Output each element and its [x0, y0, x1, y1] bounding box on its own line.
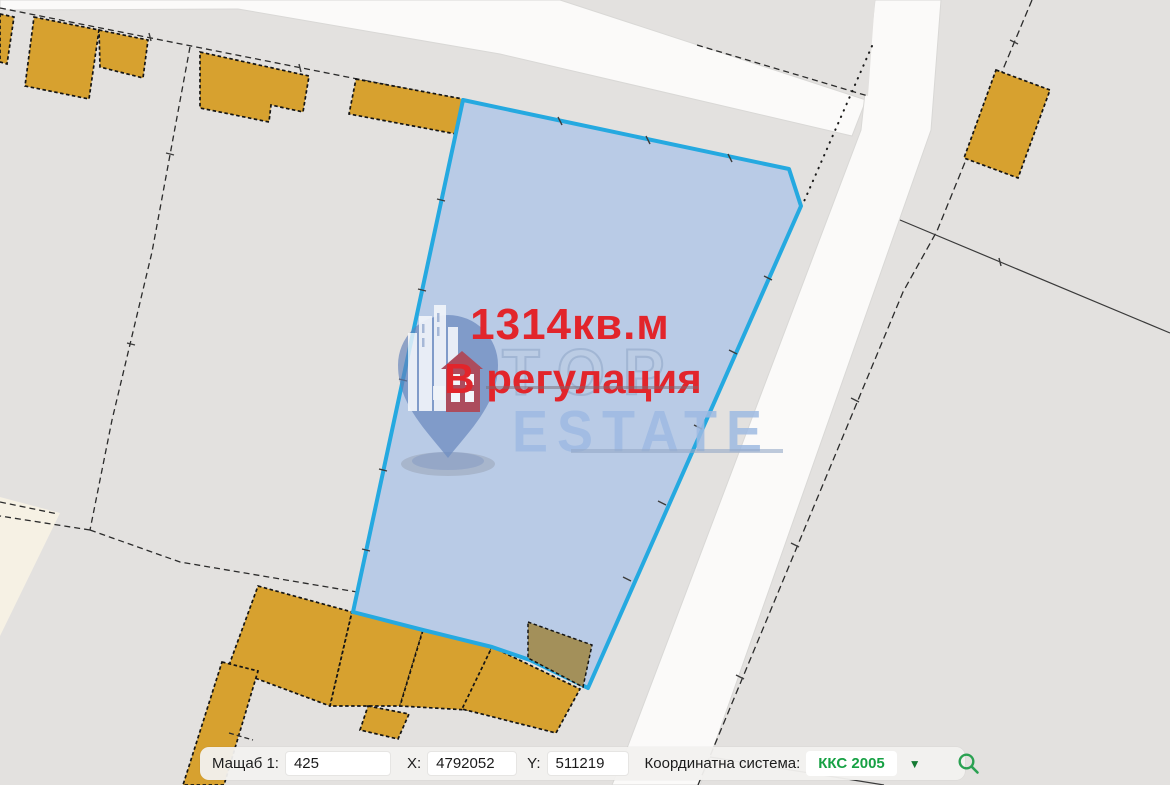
x-coordinate-label: X: — [407, 755, 421, 772]
map-canvas[interactable]: TOP ESTATE 1314кв.м В регулация — [0, 0, 1170, 785]
search-icon — [957, 752, 980, 775]
y-coordinate-label: Y: — [527, 755, 540, 772]
x-coordinate-input[interactable] — [427, 751, 517, 776]
crs-value: ККС 2005 — [818, 755, 884, 772]
map-toolbar: Мащаб 1: X: Y: Координатна система: ККС … — [200, 747, 965, 780]
scale-label: Мащаб 1: — [212, 755, 279, 772]
watermark-divider-line — [486, 386, 698, 389]
y-coordinate-input[interactable] — [547, 751, 629, 776]
search-button[interactable] — [957, 752, 980, 775]
watermark-underline — [571, 449, 783, 453]
crs-label: Координатна система: — [645, 755, 801, 772]
crs-dropdown[interactable]: ККС 2005 — [806, 751, 896, 776]
building — [25, 17, 99, 99]
scale-input[interactable] — [285, 751, 391, 776]
chevron-down-icon[interactable]: ▼ — [909, 757, 921, 771]
parcel-area-label: 1314кв.м — [415, 303, 725, 347]
parcel-status-label: В регулация — [408, 358, 738, 400]
